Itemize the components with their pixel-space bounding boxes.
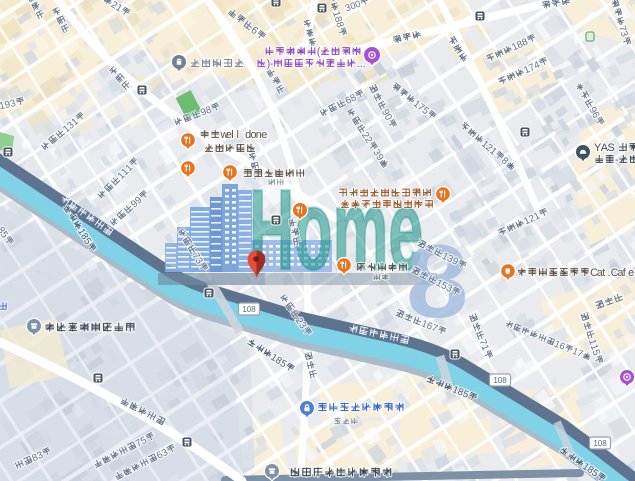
- svg-text:Home: Home: [249, 167, 423, 293]
- svg-text:t: t: [602, 267, 605, 279]
- svg-text:e: e: [261, 129, 267, 141]
- svg-text:l: l: [231, 129, 233, 141]
- svg-text:108: 108: [242, 305, 256, 314]
- svg-text:-: -: [615, 154, 619, 166]
- svg-text:(: (: [317, 46, 321, 58]
- svg-text:S: S: [608, 142, 615, 154]
- svg-text:l: l: [237, 129, 239, 141]
- svg-text:e: e: [628, 267, 634, 279]
- svg-text:-: -: [270, 58, 274, 70]
- svg-text:108: 108: [593, 439, 607, 448]
- svg-text:.: .: [363, 58, 366, 70]
- svg-text:108: 108: [493, 376, 507, 385]
